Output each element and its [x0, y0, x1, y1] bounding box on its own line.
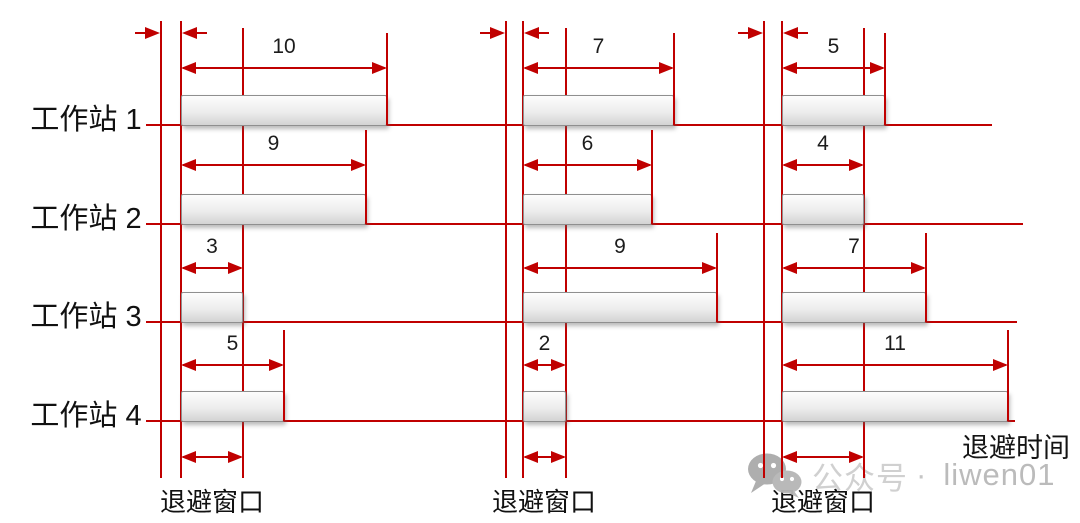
arrowhead-left-icon: [523, 262, 538, 274]
arrowhead-right-icon: [911, 262, 926, 274]
backoff-bar: [523, 292, 717, 323]
arrowhead-left-icon: [782, 359, 797, 371]
backoff-dimension-arrow: [525, 164, 650, 166]
arrowhead-right-icon: [849, 451, 864, 463]
backoff-bar: [782, 194, 864, 225]
backoff-end-line: [884, 33, 886, 125]
arrowhead-right-icon: [145, 27, 160, 39]
arrowhead-left-icon: [782, 159, 797, 171]
arrowhead-left-icon: [523, 159, 538, 171]
backoff-value: 11: [782, 332, 1008, 356]
backoff-bar: [181, 391, 284, 422]
arrowhead-right-icon: [993, 359, 1008, 371]
backoff-bar: [782, 391, 1008, 422]
arrowhead-right-icon: [551, 451, 566, 463]
backoff-bar: [181, 292, 243, 323]
backoff-dimension-arrow: [183, 364, 282, 366]
arrowhead-left-icon: [782, 262, 797, 274]
arrowhead-right-icon: [637, 159, 652, 171]
backoff-end-line: [673, 33, 675, 125]
watermark-latin-text: liwen01: [943, 457, 1055, 493]
backoff-bar: [523, 95, 674, 126]
arrowhead-right-icon: [551, 359, 566, 371]
backoff-dimension-arrow: [183, 67, 385, 69]
arrowhead-right-icon: [228, 451, 243, 463]
station-label-3: 工作站 3: [30, 293, 142, 335]
station-label-2: 工作站 2: [30, 195, 142, 237]
backoff-value: 3: [181, 235, 243, 259]
backoff-dimension-arrow: [525, 267, 715, 269]
arrowhead-right-icon: [870, 62, 885, 74]
arrowhead-right-icon: [228, 262, 243, 274]
backoff-end-line: [283, 330, 285, 421]
backoff-value: 5: [181, 332, 284, 356]
arrowhead-left-icon: [782, 451, 797, 463]
arrowhead-right-icon: [372, 62, 387, 74]
backoff-bar: [523, 391, 566, 422]
watermark-separator: ·: [916, 457, 927, 493]
backoff-value: 9: [181, 132, 366, 156]
backoff-bar: [523, 194, 652, 225]
arrowhead-left-icon: [181, 262, 196, 274]
station-label-1: 工作站 1: [30, 96, 142, 138]
arrowhead-right-icon: [269, 359, 284, 371]
backoff-value: 10: [181, 35, 387, 59]
arrowhead-left-icon: [181, 359, 196, 371]
previous-transmission-end-line: [505, 21, 507, 478]
backoff-end-line: [651, 130, 653, 224]
backoff-value: 9: [523, 235, 717, 259]
backoff-end-line: [925, 233, 927, 322]
backoff-dimension-arrow: [784, 364, 1006, 366]
backoff-end-line: [1007, 330, 1009, 421]
arrowhead-right-icon: [351, 159, 366, 171]
previous-transmission-end-line: [160, 21, 162, 478]
backoff-bar: [181, 95, 387, 126]
backoff-dimension-arrow: [183, 164, 364, 166]
station-label-4: 工作站 4: [30, 392, 142, 434]
backoff-value: 5: [782, 35, 885, 59]
backoff-value: 6: [523, 132, 652, 156]
backoff-end-line: [386, 33, 388, 125]
arrowhead-right-icon: [748, 27, 763, 39]
backoff-value: 7: [523, 35, 674, 59]
arrowhead-left-icon: [181, 451, 196, 463]
backoff-window-label-1: 退避窗口: [130, 482, 294, 519]
arrowhead-right-icon: [702, 262, 717, 274]
backoff-dimension-arrow: [784, 67, 883, 69]
arrowhead-left-icon: [782, 62, 797, 74]
arrowhead-right-icon: [490, 27, 505, 39]
backoff-end-line: [365, 130, 367, 224]
backoff-timing-diagram: 工作站 1 工作站 2 工作站 3 工作站 4 退避窗口 退避窗口 退避窗口 退…: [0, 0, 1080, 523]
arrowhead-left-icon: [523, 451, 538, 463]
backoff-value: 2: [523, 332, 566, 356]
backoff-value: 7: [782, 235, 926, 259]
arrowhead-left-icon: [523, 359, 538, 371]
backoff-value: 4: [782, 132, 864, 156]
previous-transmission-end-line: [763, 21, 765, 478]
arrowhead-left-icon: [181, 159, 196, 171]
backoff-window-label-2: 退避窗口: [462, 482, 626, 519]
arrowhead-left-icon: [523, 62, 538, 74]
backoff-bar: [782, 292, 926, 323]
backoff-dimension-arrow: [525, 67, 672, 69]
arrowhead-right-icon: [659, 62, 674, 74]
backoff-dimension-arrow: [784, 267, 924, 269]
arrowhead-left-icon: [181, 62, 196, 74]
backoff-bar: [782, 95, 885, 126]
backoff-bar: [181, 194, 366, 225]
backoff-end-line: [716, 233, 718, 322]
arrowhead-right-icon: [849, 159, 864, 171]
